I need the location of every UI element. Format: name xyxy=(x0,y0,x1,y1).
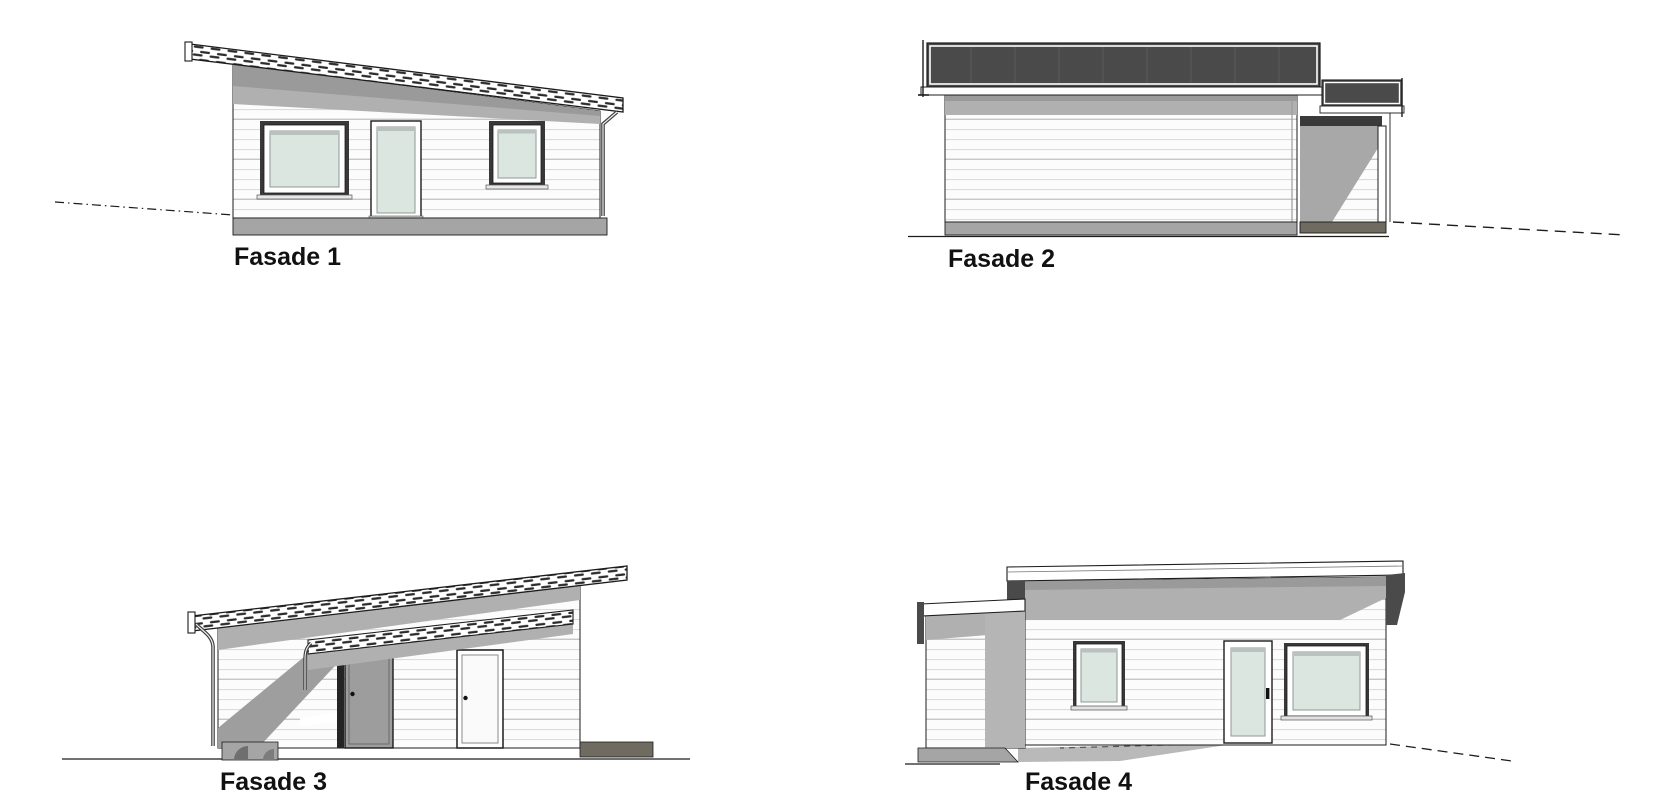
fasade-2-label: Fasade 2 xyxy=(948,245,1055,274)
window-sill xyxy=(486,185,548,189)
window-sill xyxy=(257,195,352,199)
fasade-4-label: Fasade 4 xyxy=(1025,768,1132,797)
eave-shadow-dark xyxy=(945,95,1297,101)
window-large xyxy=(257,121,352,199)
window-large xyxy=(1281,643,1372,720)
carport-bay xyxy=(1300,113,1390,222)
downspout-highlight xyxy=(603,112,617,216)
fascia xyxy=(921,87,1324,95)
fasade-1-drawing xyxy=(55,42,623,235)
downspout xyxy=(603,112,617,216)
carport-fascia xyxy=(1320,106,1404,113)
fasade-2-drawing xyxy=(908,40,1625,237)
drawing-sheet: Fasade 1 Fasade 2 Fasade 3 Fasade 4 xyxy=(0,0,1670,800)
door-handle xyxy=(1266,688,1269,699)
carport-pad xyxy=(1300,222,1386,233)
carport-header xyxy=(1300,116,1382,126)
door-handle xyxy=(463,696,467,700)
door-handle xyxy=(350,692,354,696)
window-sill xyxy=(1281,716,1372,720)
fasade-4-drawing xyxy=(905,561,1512,764)
fascia-corner-right xyxy=(1386,573,1405,625)
roof-end-cap xyxy=(188,612,195,633)
terrain-line xyxy=(55,202,233,215)
foundation xyxy=(233,218,607,235)
foundation-block xyxy=(222,742,278,760)
fasade-1-label: Fasade 1 xyxy=(234,243,341,272)
carport-fascia-corner xyxy=(917,602,924,644)
elevations-canvas xyxy=(0,0,1670,800)
terrace-pad xyxy=(580,742,653,757)
door-side xyxy=(457,650,503,748)
terrain-line xyxy=(1393,222,1625,235)
window-small xyxy=(486,121,548,189)
carport-side-shadow xyxy=(985,611,1025,748)
carport xyxy=(905,599,1025,764)
window-sill xyxy=(1071,706,1127,710)
door-glazed xyxy=(1224,641,1272,743)
roof-end-cap xyxy=(185,42,192,61)
foundation xyxy=(945,222,1297,235)
door-glazed xyxy=(369,121,423,220)
fasade-3-label: Fasade 3 xyxy=(220,768,327,797)
carport-foundation xyxy=(918,748,1018,762)
carport-roof xyxy=(1320,78,1404,117)
downspout xyxy=(196,624,213,746)
window-small xyxy=(1071,641,1127,710)
fasade-3-drawing xyxy=(62,566,690,760)
terrain-line xyxy=(1390,744,1512,761)
carport-post xyxy=(1378,126,1386,222)
roof xyxy=(918,40,1324,97)
